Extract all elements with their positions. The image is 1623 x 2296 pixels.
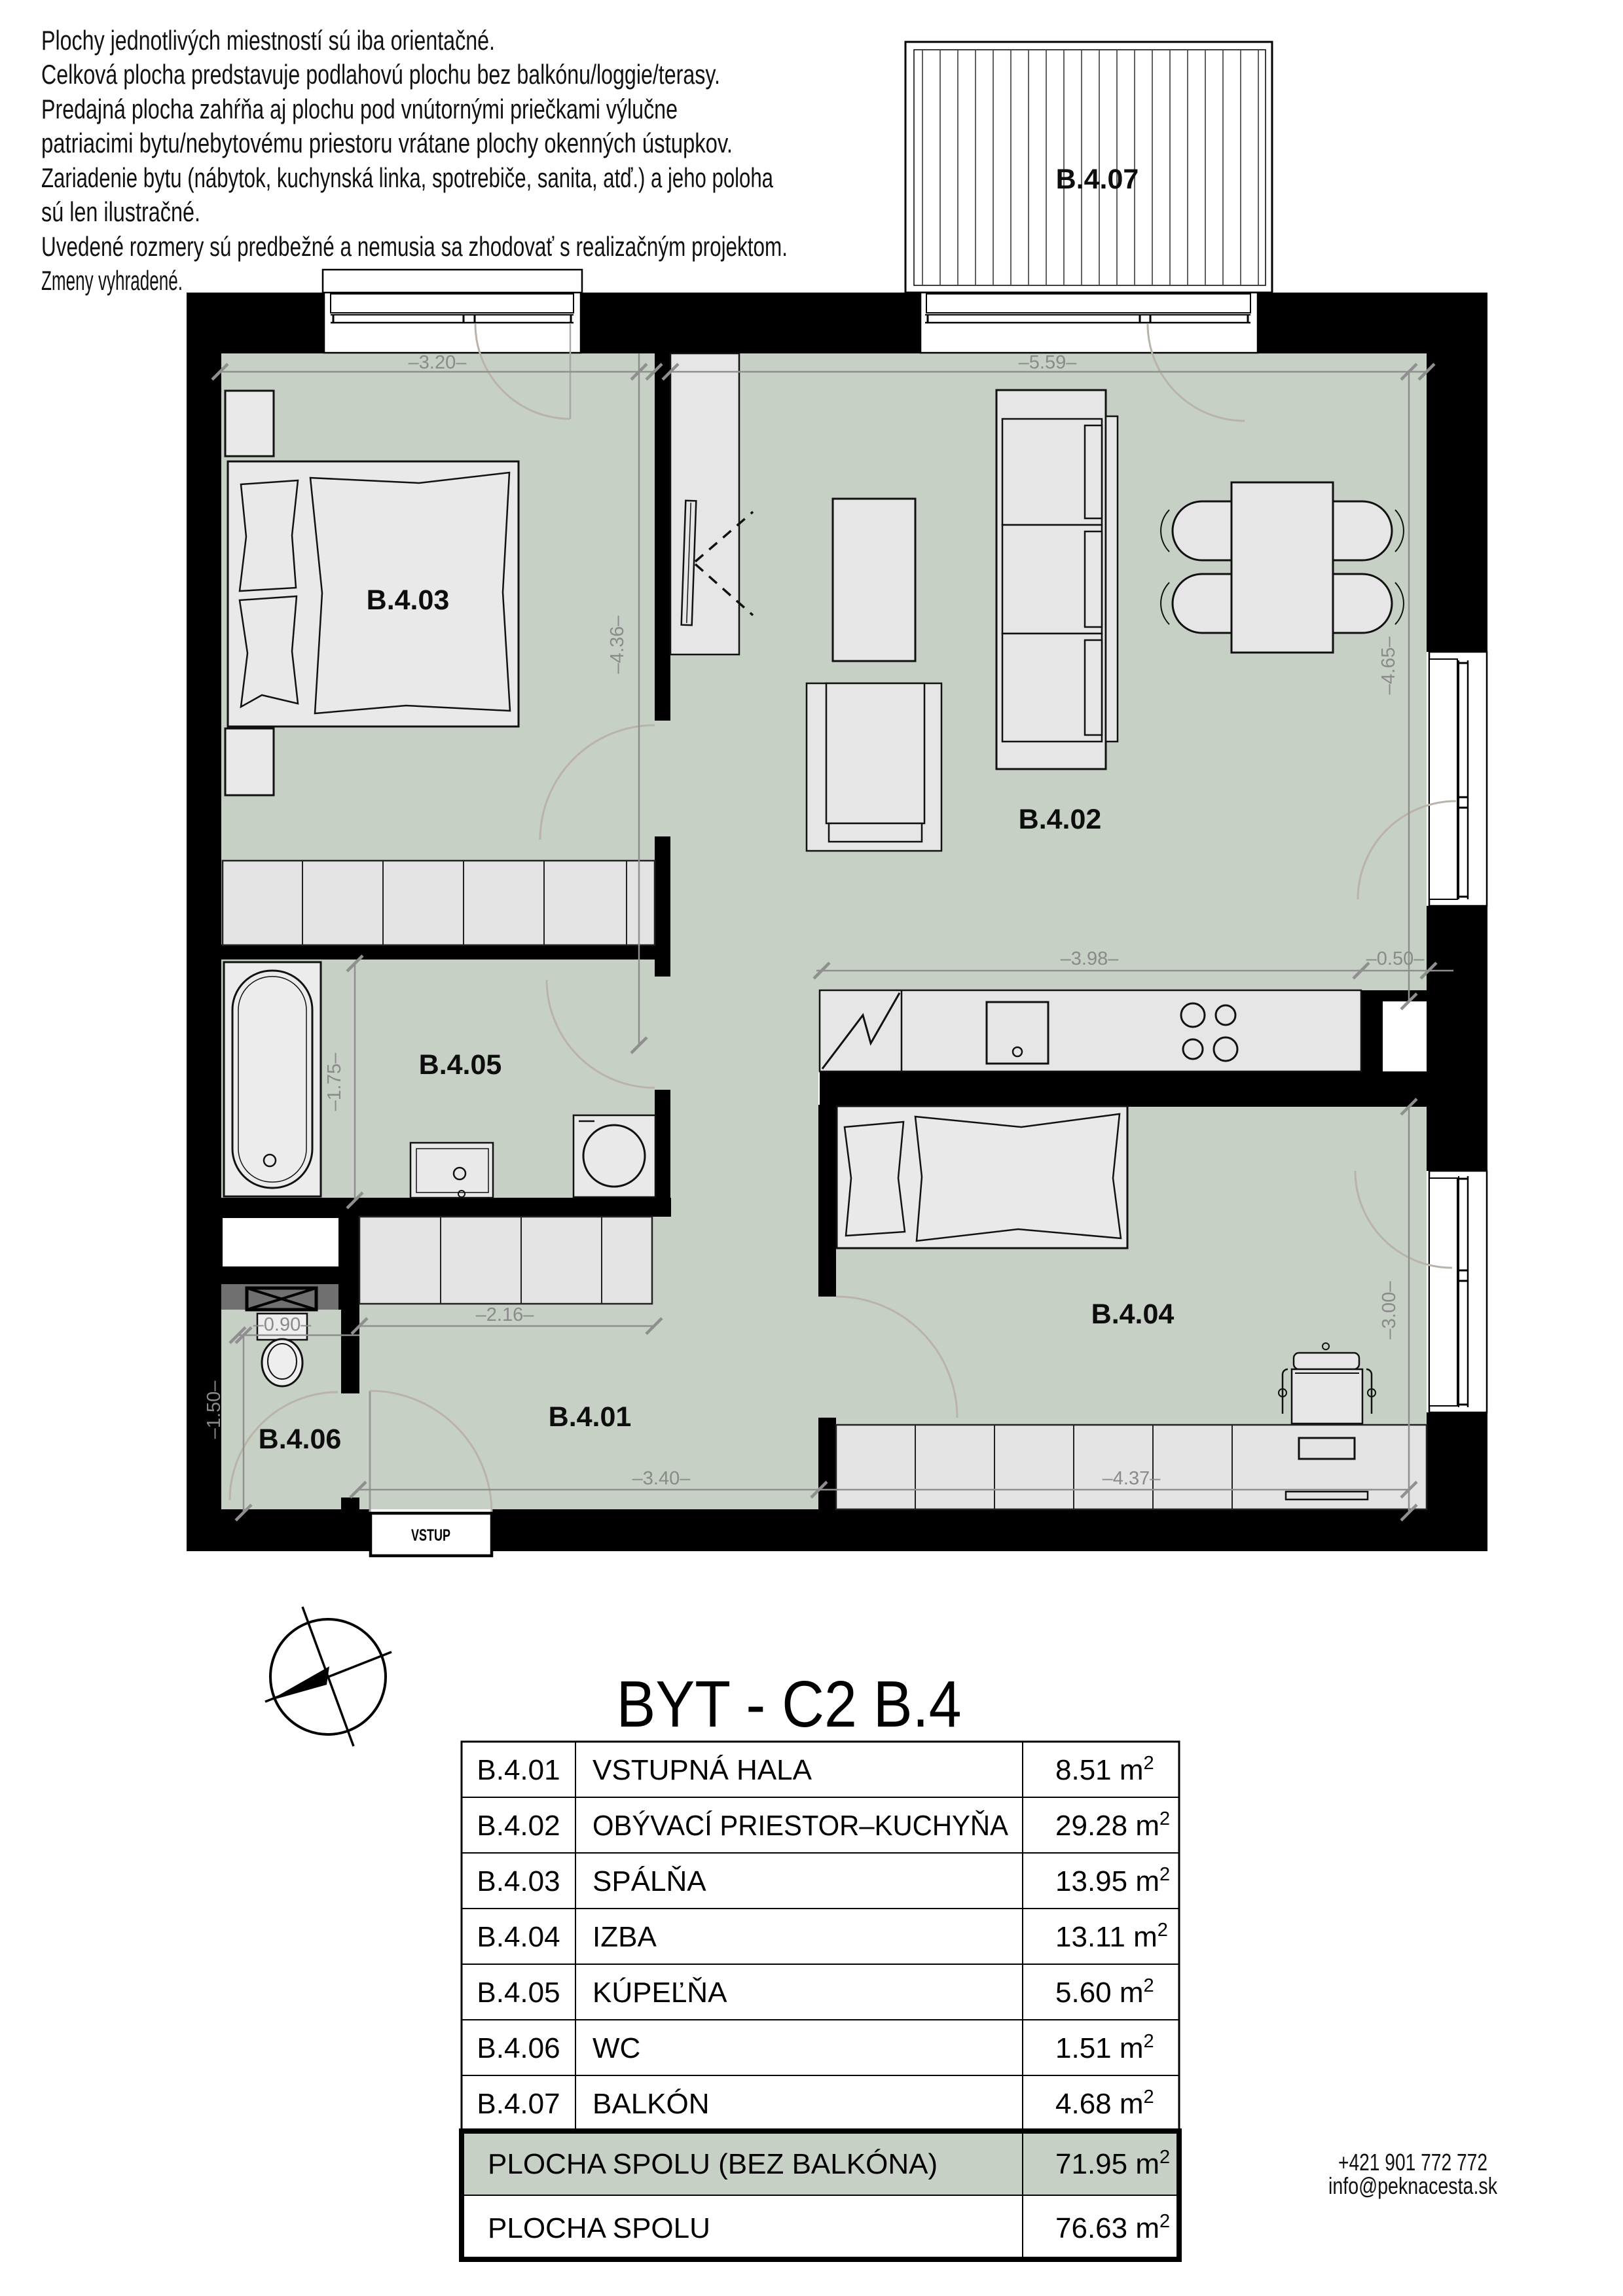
svg-text:8.51 m2: 8.51 m2 <box>1055 1753 1154 1786</box>
svg-text:Zariadenie bytu (nábytok, kuch: Zariadenie bytu (nábytok, kuchynská link… <box>41 162 773 193</box>
svg-text:B.4.05: B.4.05 <box>419 1049 502 1081</box>
svg-text:B.4.04: B.4.04 <box>477 1921 560 1953</box>
svg-text:patriacimi bytu/nebytovému pri: patriacimi bytu/nebytovému priestoru vrá… <box>41 128 733 158</box>
svg-text:B.4.04: B.4.04 <box>1091 1299 1175 1330</box>
svg-text:Plochy jednotlivých miestností: Plochy jednotlivých miestností sú iba or… <box>41 25 495 56</box>
svg-text:B.4.02: B.4.02 <box>477 1810 560 1842</box>
svg-text:WC: WC <box>593 2032 640 2064</box>
svg-text:–0.90–: –0.90– <box>253 1314 312 1335</box>
svg-text:VSTUP: VSTUP <box>411 1526 450 1545</box>
svg-text:B.4.07: B.4.07 <box>477 2088 560 2120</box>
svg-text:B.4.01: B.4.01 <box>549 1401 632 1433</box>
svg-text:–1.50–: –1.50– <box>204 1380 225 1439</box>
svg-text:–4.36–: –4.36– <box>607 615 628 674</box>
svg-text:OBÝVACÍ PRIESTOR–KUCHYŇA: OBÝVACÍ PRIESTOR–KUCHYŇA <box>593 1810 1009 1842</box>
svg-text:KÚPEĽŇA: KÚPEĽŇA <box>593 1977 727 2009</box>
svg-text:Predajná plocha zahŕňa aj ploc: Predajná plocha zahŕňa aj plochu pod vnú… <box>41 94 678 124</box>
svg-text:SPÁLŇA: SPÁLŇA <box>593 1865 706 1897</box>
svg-text:–2.16–: –2.16– <box>476 1304 535 1325</box>
svg-text:sú len ilustračné.: sú len ilustračné. <box>41 196 200 227</box>
svg-text:Uvedené rozmery sú predbežné a: Uvedené rozmery sú predbežné a nemusia s… <box>41 231 788 262</box>
svg-text:B.4.01: B.4.01 <box>477 1754 560 1786</box>
svg-text:5.60 m2: 5.60 m2 <box>1055 1975 1154 2009</box>
svg-text:–0.50–: –0.50– <box>1366 948 1425 969</box>
svg-text:B.4.05: B.4.05 <box>477 1977 560 2009</box>
svg-text:BALKÓN: BALKÓN <box>593 2088 710 2120</box>
svg-text:4.68 m2: 4.68 m2 <box>1055 2087 1154 2120</box>
svg-text:B.4.06: B.4.06 <box>259 1424 342 1455</box>
svg-text:–3.98–: –3.98– <box>1061 948 1120 969</box>
svg-text:PLOCHA SPOLU (BEZ BALKÓNA): PLOCHA SPOLU (BEZ BALKÓNA) <box>488 2148 938 2180</box>
svg-text:info@peknacesta.sk: info@peknacesta.sk <box>1328 2172 1498 2199</box>
svg-text:–3.20–: –3.20– <box>409 352 467 373</box>
svg-text:+421 901 772 772: +421 901 772 772 <box>1338 2149 1487 2176</box>
svg-text:29.28 m2: 29.28 m2 <box>1055 1808 1170 1842</box>
svg-text:–4.37–: –4.37– <box>1103 1468 1161 1489</box>
svg-text:–5.59–: –5.59– <box>1019 352 1078 373</box>
svg-text:Zmeny vyhradené.: Zmeny vyhradené. <box>41 265 183 296</box>
svg-text:B.4.03: B.4.03 <box>367 584 450 616</box>
svg-text:B.4.02: B.4.02 <box>1019 804 1102 835</box>
svg-text:Celková plocha predstavuje pod: Celková plocha predstavuje podlahovú plo… <box>41 59 720 90</box>
svg-text:–3.00–: –3.00– <box>1379 1281 1400 1340</box>
svg-text:–3.40–: –3.40– <box>632 1468 691 1489</box>
svg-text:1.51 m2: 1.51 m2 <box>1055 2031 1154 2064</box>
svg-text:PLOCHA SPOLU: PLOCHA SPOLU <box>488 2212 710 2244</box>
svg-text:IZBA: IZBA <box>593 1921 657 1953</box>
svg-text:13.11 m2: 13.11 m2 <box>1055 1920 1168 1953</box>
svg-text:B.4.06: B.4.06 <box>477 2032 560 2064</box>
svg-text:13.95 m2: 13.95 m2 <box>1055 1864 1170 1897</box>
svg-text:B.4.07: B.4.07 <box>1056 164 1139 195</box>
svg-text:71.95 m2: 71.95 m2 <box>1055 2147 1170 2180</box>
svg-text:VSTUPNÁ HALA: VSTUPNÁ HALA <box>593 1754 812 1786</box>
svg-text:B.4.03: B.4.03 <box>477 1865 560 1897</box>
svg-text:–1.75–: –1.75– <box>324 1052 345 1111</box>
svg-text:–4.65–: –4.65– <box>1378 636 1399 695</box>
svg-text:76.63 m2: 76.63 m2 <box>1055 2211 1170 2244</box>
svg-text:BYT - C2 B.4: BYT - C2 B.4 <box>617 1668 962 1741</box>
